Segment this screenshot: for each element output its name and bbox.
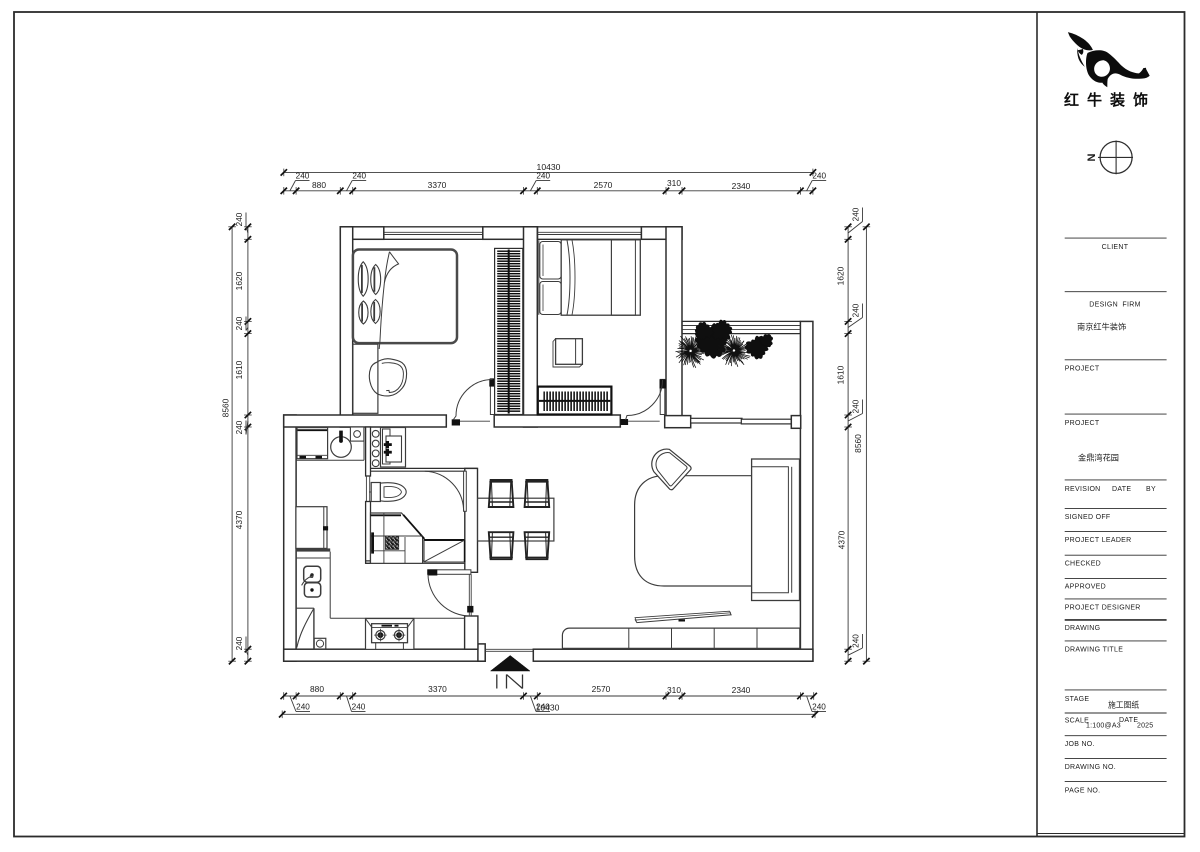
svg-text:金鼎湾花园: 金鼎湾花园 (1078, 453, 1119, 463)
svg-text:DESIGN FIRM: DESIGN FIRM (1089, 302, 1140, 309)
svg-text:240: 240 (352, 172, 366, 181)
svg-text:N: N (1086, 153, 1098, 161)
svg-text:DATE: DATE (1112, 486, 1131, 493)
svg-text:240: 240 (352, 703, 366, 712)
svg-text:APPROVED: APPROVED (1065, 584, 1106, 591)
svg-text:DRAWING: DRAWING (1065, 625, 1101, 632)
svg-text:880: 880 (312, 180, 326, 190)
svg-text:240: 240 (296, 172, 310, 181)
svg-text:红牛装饰: 红牛装饰 (1064, 91, 1156, 109)
svg-text:2340: 2340 (732, 181, 751, 191)
svg-text:240: 240 (235, 212, 244, 226)
svg-text:880: 880 (310, 684, 324, 694)
svg-text:3370: 3370 (428, 180, 447, 190)
svg-text:施工图纸: 施工图纸 (1108, 700, 1139, 710)
svg-text:240: 240 (851, 634, 860, 648)
svg-text:REVISION: REVISION (1065, 486, 1101, 493)
svg-text:240: 240 (235, 420, 244, 434)
svg-text:1610: 1610 (234, 360, 244, 379)
svg-text:PROJECT LEADER: PROJECT LEADER (1065, 537, 1132, 544)
svg-text:CHECKED: CHECKED (1065, 561, 1101, 568)
svg-text:2570: 2570 (592, 684, 611, 694)
svg-text:240: 240 (851, 399, 860, 413)
svg-text:10430: 10430 (537, 162, 561, 172)
svg-text:3370: 3370 (428, 684, 447, 694)
svg-text:240: 240 (536, 172, 550, 181)
svg-text:2025: 2025 (1137, 723, 1153, 730)
svg-text:4370: 4370 (234, 510, 244, 529)
svg-text:310: 310 (667, 685, 681, 695)
svg-text:2340: 2340 (732, 685, 751, 695)
svg-text:8560: 8560 (221, 398, 231, 417)
svg-text:STAGE: STAGE (1065, 696, 1090, 703)
svg-text:1620: 1620 (234, 271, 244, 290)
svg-text:240: 240 (851, 303, 860, 317)
svg-text:SIGNED OFF: SIGNED OFF (1065, 514, 1111, 521)
svg-text:CLIENT: CLIENT (1102, 244, 1129, 251)
svg-text:2570: 2570 (594, 180, 613, 190)
svg-text:10430: 10430 (536, 703, 560, 713)
svg-text:240: 240 (851, 207, 860, 221)
svg-text:4370: 4370 (837, 530, 847, 549)
svg-text:240: 240 (296, 703, 310, 712)
svg-text:240: 240 (235, 316, 244, 330)
svg-text:PROJECT DESIGNER: PROJECT DESIGNER (1065, 605, 1141, 612)
svg-text:240: 240 (812, 172, 826, 181)
svg-text:1610: 1610 (836, 365, 846, 384)
svg-text:240: 240 (235, 636, 244, 650)
svg-text:1:100@A3: 1:100@A3 (1086, 723, 1121, 730)
svg-text:PAGE NO.: PAGE NO. (1065, 788, 1101, 795)
svg-text:JOB NO.: JOB NO. (1065, 741, 1095, 748)
svg-text:PROJECT: PROJECT (1065, 420, 1100, 427)
svg-text:DATE: DATE (1119, 717, 1138, 724)
svg-text:南京红牛装饰: 南京红牛装饰 (1077, 322, 1126, 332)
svg-text:1620: 1620 (836, 266, 846, 285)
svg-text:310: 310 (667, 178, 681, 188)
svg-text:240: 240 (812, 703, 826, 712)
svg-text:DRAWING TITLE: DRAWING TITLE (1065, 647, 1124, 654)
svg-text:BY: BY (1146, 486, 1156, 493)
svg-text:8560: 8560 (853, 434, 863, 453)
svg-text:DRAWING NO.: DRAWING NO. (1065, 764, 1116, 771)
svg-text:PROJECT: PROJECT (1065, 366, 1100, 373)
